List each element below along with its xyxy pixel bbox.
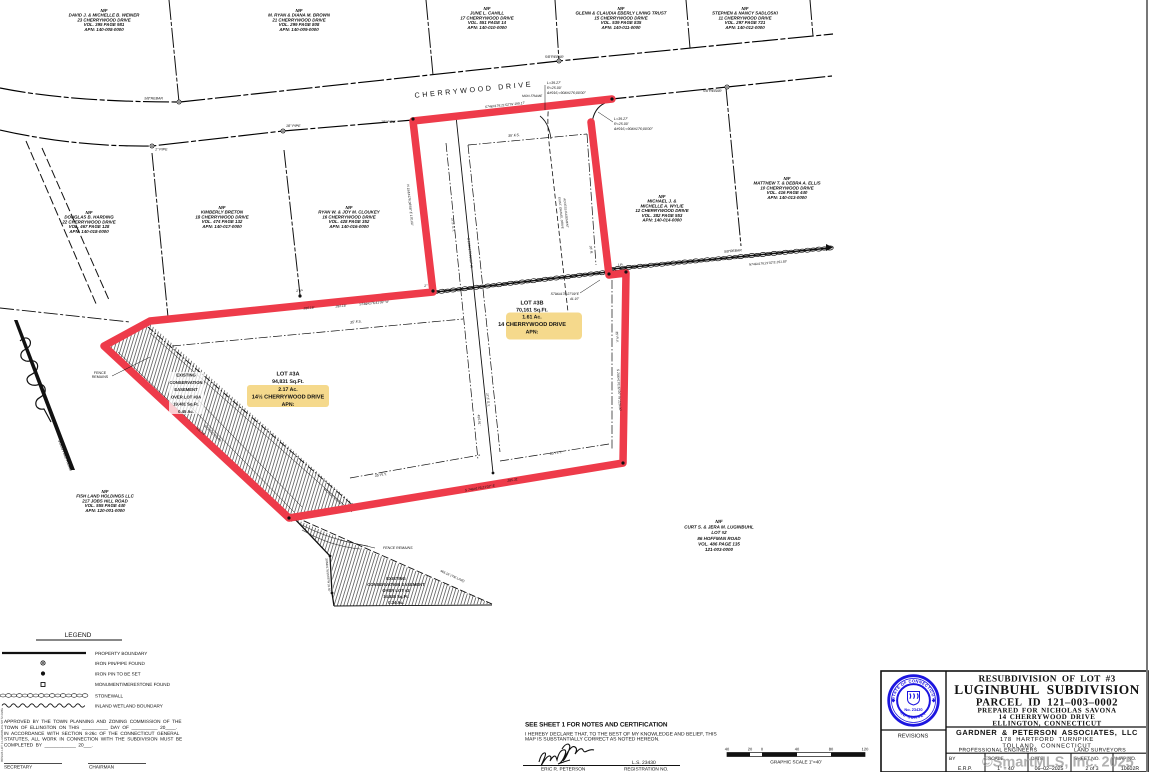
svg-text:18" PIPE: 18" PIPE bbox=[286, 124, 301, 128]
svg-text:S79&#176;27'09"E: S79&#176;27'09"E bbox=[551, 292, 580, 296]
svg-text:14 CHERRYWOOD DRIVE: 14 CHERRYWOOD DRIVE bbox=[498, 322, 566, 328]
svg-text:MON FRAME: MON FRAME bbox=[522, 94, 543, 98]
svg-text:1" P: 1" P bbox=[296, 289, 303, 293]
svg-text:R=25.00': R=25.00' bbox=[547, 86, 562, 90]
svg-text:19,481 Sq.Ft.: 19,481 Sq.Ft. bbox=[173, 402, 199, 407]
svg-text:18" PIPE: 18" PIPE bbox=[381, 120, 396, 124]
svg-text:OVER LOT #3A: OVER LOT #3A bbox=[171, 394, 201, 399]
svg-text:ELLINGTON, CONNECTICUT: ELLINGTON, CONNECTICUT bbox=[992, 719, 1101, 727]
svg-text:LOT #2: LOT #2 bbox=[711, 530, 727, 535]
svg-text:IRON PIN/PIPE FOUND: IRON PIN/PIPE FOUND bbox=[95, 661, 145, 666]
svg-text:APN: 140-017-0000: APN: 140-017-0000 bbox=[201, 224, 242, 229]
svg-text:80: 80 bbox=[829, 747, 834, 752]
svg-text:178 HARTFORD TURNPIKE: 178 HARTFORD TURNPIKE bbox=[1000, 736, 1094, 743]
svg-text:CONSERVATION EASEMENT: CONSERVATION EASEMENT bbox=[367, 582, 425, 587]
svg-text:CONSERVATION: CONSERVATION bbox=[169, 380, 202, 385]
svg-text:5/8"REBAR: 5/8"REBAR bbox=[545, 55, 564, 59]
svg-text:0.34 Ac.: 0.34 Ac. bbox=[388, 600, 404, 605]
svg-text:OVER LOT #2: OVER LOT #2 bbox=[382, 588, 410, 593]
svg-text:14,835 Sq.Ft.: 14,835 Sq.Ft. bbox=[383, 594, 409, 599]
svg-text:APN:: APN: bbox=[282, 402, 295, 408]
svg-text:E.R.P.: E.R.P. bbox=[958, 766, 972, 772]
svg-text:121-003-0000: 121-003-0000 bbox=[705, 547, 734, 552]
svg-text:120: 120 bbox=[862, 747, 869, 752]
svg-text:ERIC R. PETERSON: ERIC R. PETERSON bbox=[541, 767, 585, 772]
svg-text:1" PIPE: 1" PIPE bbox=[155, 148, 168, 152]
svg-text:APN: 140-012-0000: APN: 140-012-0000 bbox=[724, 25, 765, 30]
svg-text:RESUB LOT 3 LUGINBUHL SHT2.DWG: RESUB LOT 3 LUGINBUHL SHT2.DWG bbox=[0, 707, 4, 762]
svg-text:COMPLETED BY ____________ 2: COMPLETED BY ____________ 20___. bbox=[4, 742, 93, 747]
svg-text:CHAIRMAN: CHAIRMAN bbox=[89, 765, 114, 770]
svg-text:STONEWALL: STONEWALL bbox=[95, 694, 124, 699]
svg-text:I.P.: I.P. bbox=[618, 263, 623, 267]
svg-text:APN: 140-009-0000: APN: 140-009-0000 bbox=[278, 27, 319, 32]
svg-text:N/F: N/F bbox=[715, 519, 723, 524]
svg-text:LEGEND: LEGEND bbox=[65, 632, 92, 639]
svg-text:40: 40 bbox=[795, 747, 800, 752]
svg-text:14½ CHERRYWOOD DRIVE: 14½ CHERRYWOOD DRIVE bbox=[252, 395, 325, 401]
svg-text:94,831 Sq.Ft.: 94,831 Sq.Ft. bbox=[272, 379, 304, 385]
svg-text:LOT #3A: LOT #3A bbox=[276, 372, 299, 378]
svg-text:MAP IS SUBSTANTIALLY CORREC: MAP IS SUBSTANTIALLY CORRECT AS NOTED HE… bbox=[525, 737, 660, 743]
svg-text:L=39.27': L=39.27' bbox=[614, 117, 628, 121]
svg-text:IN ACCORDANCE WITH SECTION: IN ACCORDANCE WITH SECTION 8-26c OF THE … bbox=[4, 731, 180, 736]
svg-text:APN: 140-016-0000: APN: 140-016-0000 bbox=[328, 224, 369, 229]
svg-text:APN: 140-010-0000: APN: 140-010-0000 bbox=[466, 25, 507, 30]
svg-text:GRAPHIC SCALE 1"=40': GRAPHIC SCALE 1"=40' bbox=[770, 760, 822, 765]
svg-text:STATUTES, ALL WORK IN CONN: STATUTES, ALL WORK IN CONNECTION WITH TH… bbox=[4, 737, 182, 742]
svg-text:L.S. 23430: L.S. 23430 bbox=[632, 760, 656, 766]
svg-text:APN: 140-014-0000: APN: 140-014-0000 bbox=[641, 218, 682, 223]
svg-text:FENCE REMAINS: FENCE REMAINS bbox=[383, 546, 413, 550]
svg-text:APN:: APN: bbox=[526, 330, 539, 336]
svg-text:VOL. 486 PAGE 135: VOL. 486 PAGE 135 bbox=[698, 541, 740, 546]
svg-text:INLAND WETLAND BOUNDARY: INLAND WETLAND BOUNDARY bbox=[95, 704, 163, 709]
svg-text:SEE SHEET 1 FOR NOTES AND CERT: SEE SHEET 1 FOR NOTES AND CERTIFICATION bbox=[525, 722, 668, 729]
svg-text:LUGINBUHL SUBDIVISION: LUGINBUHL SUBDIVISION bbox=[954, 682, 1139, 697]
svg-text:&#916;=90&#176;00'00": &#916;=90&#176;00'00" bbox=[614, 127, 654, 131]
svg-text:41.97': 41.97' bbox=[570, 297, 579, 301]
svg-text:No. 23430: No. 23430 bbox=[904, 707, 922, 712]
svg-text:70,161 Sq.Ft.: 70,161 Sq.Ft. bbox=[516, 308, 548, 314]
svg-text:LAND SURVEYORS: LAND SURVEYORS bbox=[1074, 748, 1126, 754]
svg-text:©SmartMLS, Inc. 2025: ©SmartMLS, Inc. 2025 bbox=[982, 755, 1134, 771]
svg-text:EXISTING: EXISTING bbox=[176, 373, 196, 378]
svg-text:SECRETARY: SECRETARY bbox=[4, 765, 33, 770]
svg-text:APN: 140-018-0000: APN: 140-018-0000 bbox=[68, 229, 109, 234]
svg-text:40: 40 bbox=[725, 747, 730, 752]
svg-text:5/8"REBAR: 5/8"REBAR bbox=[703, 89, 722, 93]
svg-text:GARDNER & PETERSON ASSOCIATES,: GARDNER & PETERSON ASSOCIATES, LLC bbox=[956, 728, 1138, 737]
svg-text:LOT #3B: LOT #3B bbox=[520, 301, 543, 307]
svg-text:BY: BY bbox=[949, 756, 956, 762]
svg-text:R=25.00': R=25.00' bbox=[614, 122, 629, 126]
svg-text:5/8"REBAR: 5/8"REBAR bbox=[144, 97, 163, 101]
svg-text:EASEMENT: EASEMENT bbox=[174, 387, 198, 392]
svg-text:APPROVED BY THE TOWN PLANN: APPROVED BY THE TOWN PLANNING AND ZONING… bbox=[4, 719, 181, 724]
svg-text:IRON PIN TO BE SET: IRON PIN TO BE SET bbox=[95, 672, 141, 677]
svg-text:L=39.27': L=39.27' bbox=[547, 81, 561, 85]
svg-text:0.45 Ac.: 0.45 Ac. bbox=[178, 409, 194, 414]
svg-text:REMAINS: REMAINS bbox=[92, 375, 109, 379]
svg-text:20: 20 bbox=[748, 747, 753, 752]
svg-text:EXISTING: EXISTING bbox=[386, 576, 406, 581]
svg-text:CURT S. & JERA M. LUGINBUHL: CURT S. & JERA M. LUGINBUHL bbox=[684, 525, 754, 530]
svg-text:MONUMENT/MERESTONE FOUND: MONUMENT/MERESTONE FOUND bbox=[95, 682, 171, 687]
svg-text:35' R.Y.: 35' R.Y. bbox=[615, 331, 620, 343]
svg-text:APN: 120-001-0000: APN: 120-001-0000 bbox=[84, 508, 125, 513]
svg-text:APN: 140-011-0000: APN: 140-011-0000 bbox=[601, 25, 642, 30]
svg-text:1.61 Ac.: 1.61 Ac. bbox=[522, 315, 542, 321]
svg-text:REVISIONS: REVISIONS bbox=[898, 734, 929, 740]
svg-text:APN: 140-008-0000: APN: 140-008-0000 bbox=[83, 27, 124, 32]
svg-text:REGISTRATION NO.: REGISTRATION NO. bbox=[624, 767, 668, 772]
svg-text:PROPERTY BOUNDARY: PROPERTY BOUNDARY bbox=[95, 651, 147, 656]
svg-text:PROFESSIONAL ENGINEERS: PROFESSIONAL ENGINEERS bbox=[959, 748, 1038, 754]
svg-text:TOWN OF ELLINGTON ON THIS: TOWN OF ELLINGTON ON THIS __________ DAY… bbox=[4, 725, 177, 730]
svg-text:86 HOFFMAN ROAD: 86 HOFFMAN ROAD bbox=[697, 536, 741, 541]
svg-text:&#916;=90&#176;00'00": &#916;=90&#176;00'00" bbox=[547, 91, 587, 95]
svg-text:APN: 140-013-0000: APN: 140-013-0000 bbox=[766, 195, 807, 200]
svg-text:2.17 Ac.: 2.17 Ac. bbox=[278, 387, 298, 393]
